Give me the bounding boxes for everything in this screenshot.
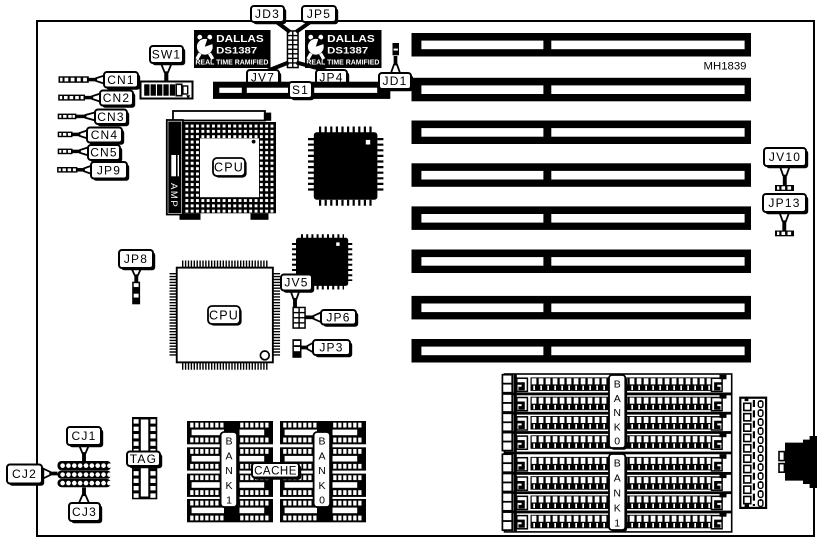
svg-text:REAL TIME RAMIFIED: REAL TIME RAMIFIED [306, 60, 379, 67]
svg-text:CN5: CN5 [90, 146, 118, 160]
svg-text:CN4: CN4 [91, 128, 119, 142]
svg-text:JP13: JP13 [768, 196, 800, 210]
svg-text:N: N [613, 407, 621, 419]
svg-text:JD3: JD3 [255, 7, 280, 21]
svg-text:CN1: CN1 [107, 73, 135, 87]
svg-text:JP5: JP5 [307, 7, 331, 21]
svg-text:AMP: AMP [168, 183, 179, 208]
svg-text:JV10: JV10 [769, 150, 801, 164]
svg-text:N: N [318, 465, 326, 477]
svg-text:REAL TIME RAMIFIED: REAL TIME RAMIFIED [195, 60, 268, 67]
svg-text:JP6: JP6 [326, 310, 350, 324]
svg-text:N: N [225, 465, 233, 477]
svg-text:DALLAS: DALLAS [327, 33, 375, 45]
svg-text:DALLAS: DALLAS [216, 33, 264, 45]
svg-text:A: A [225, 450, 232, 462]
svg-text:0: 0 [614, 436, 620, 448]
svg-text:CACHE: CACHE [254, 465, 297, 477]
svg-text:K: K [614, 421, 621, 433]
svg-text:CJ2: CJ2 [12, 467, 37, 481]
svg-text:JP9: JP9 [97, 163, 121, 177]
svg-text:A: A [614, 473, 621, 485]
svg-text:DS1387: DS1387 [327, 46, 368, 57]
svg-text:JP3: JP3 [319, 341, 343, 355]
svg-text:K: K [225, 480, 232, 492]
svg-text:S1: S1 [292, 83, 309, 97]
svg-text:0: 0 [319, 495, 325, 507]
svg-text:MH1839: MH1839 [704, 61, 747, 73]
svg-text:JV5: JV5 [284, 276, 308, 290]
svg-text:B: B [225, 436, 232, 448]
svg-text:K: K [614, 503, 621, 515]
svg-text:A: A [614, 393, 621, 405]
svg-text:CN2: CN2 [103, 91, 131, 105]
svg-text:JD1: JD1 [383, 74, 408, 88]
svg-text:1: 1 [226, 495, 232, 507]
svg-text:CJ3: CJ3 [72, 505, 97, 519]
svg-text:B: B [318, 436, 325, 448]
svg-text:B: B [614, 458, 621, 470]
svg-text:K: K [318, 480, 325, 492]
svg-text:TAG: TAG [130, 452, 157, 466]
svg-text:SW1: SW1 [152, 48, 182, 62]
svg-text:CPU: CPU [214, 161, 244, 175]
svg-text:B: B [614, 379, 621, 391]
svg-text:JP8: JP8 [124, 252, 148, 266]
svg-text:A: A [318, 450, 325, 462]
svg-text:DS1387: DS1387 [216, 46, 257, 57]
svg-text:N: N [613, 488, 621, 500]
svg-text:CN3: CN3 [97, 110, 125, 124]
svg-text:CJ1: CJ1 [72, 429, 97, 443]
svg-text:CPU: CPU [209, 309, 239, 323]
svg-text:1: 1 [614, 518, 620, 530]
